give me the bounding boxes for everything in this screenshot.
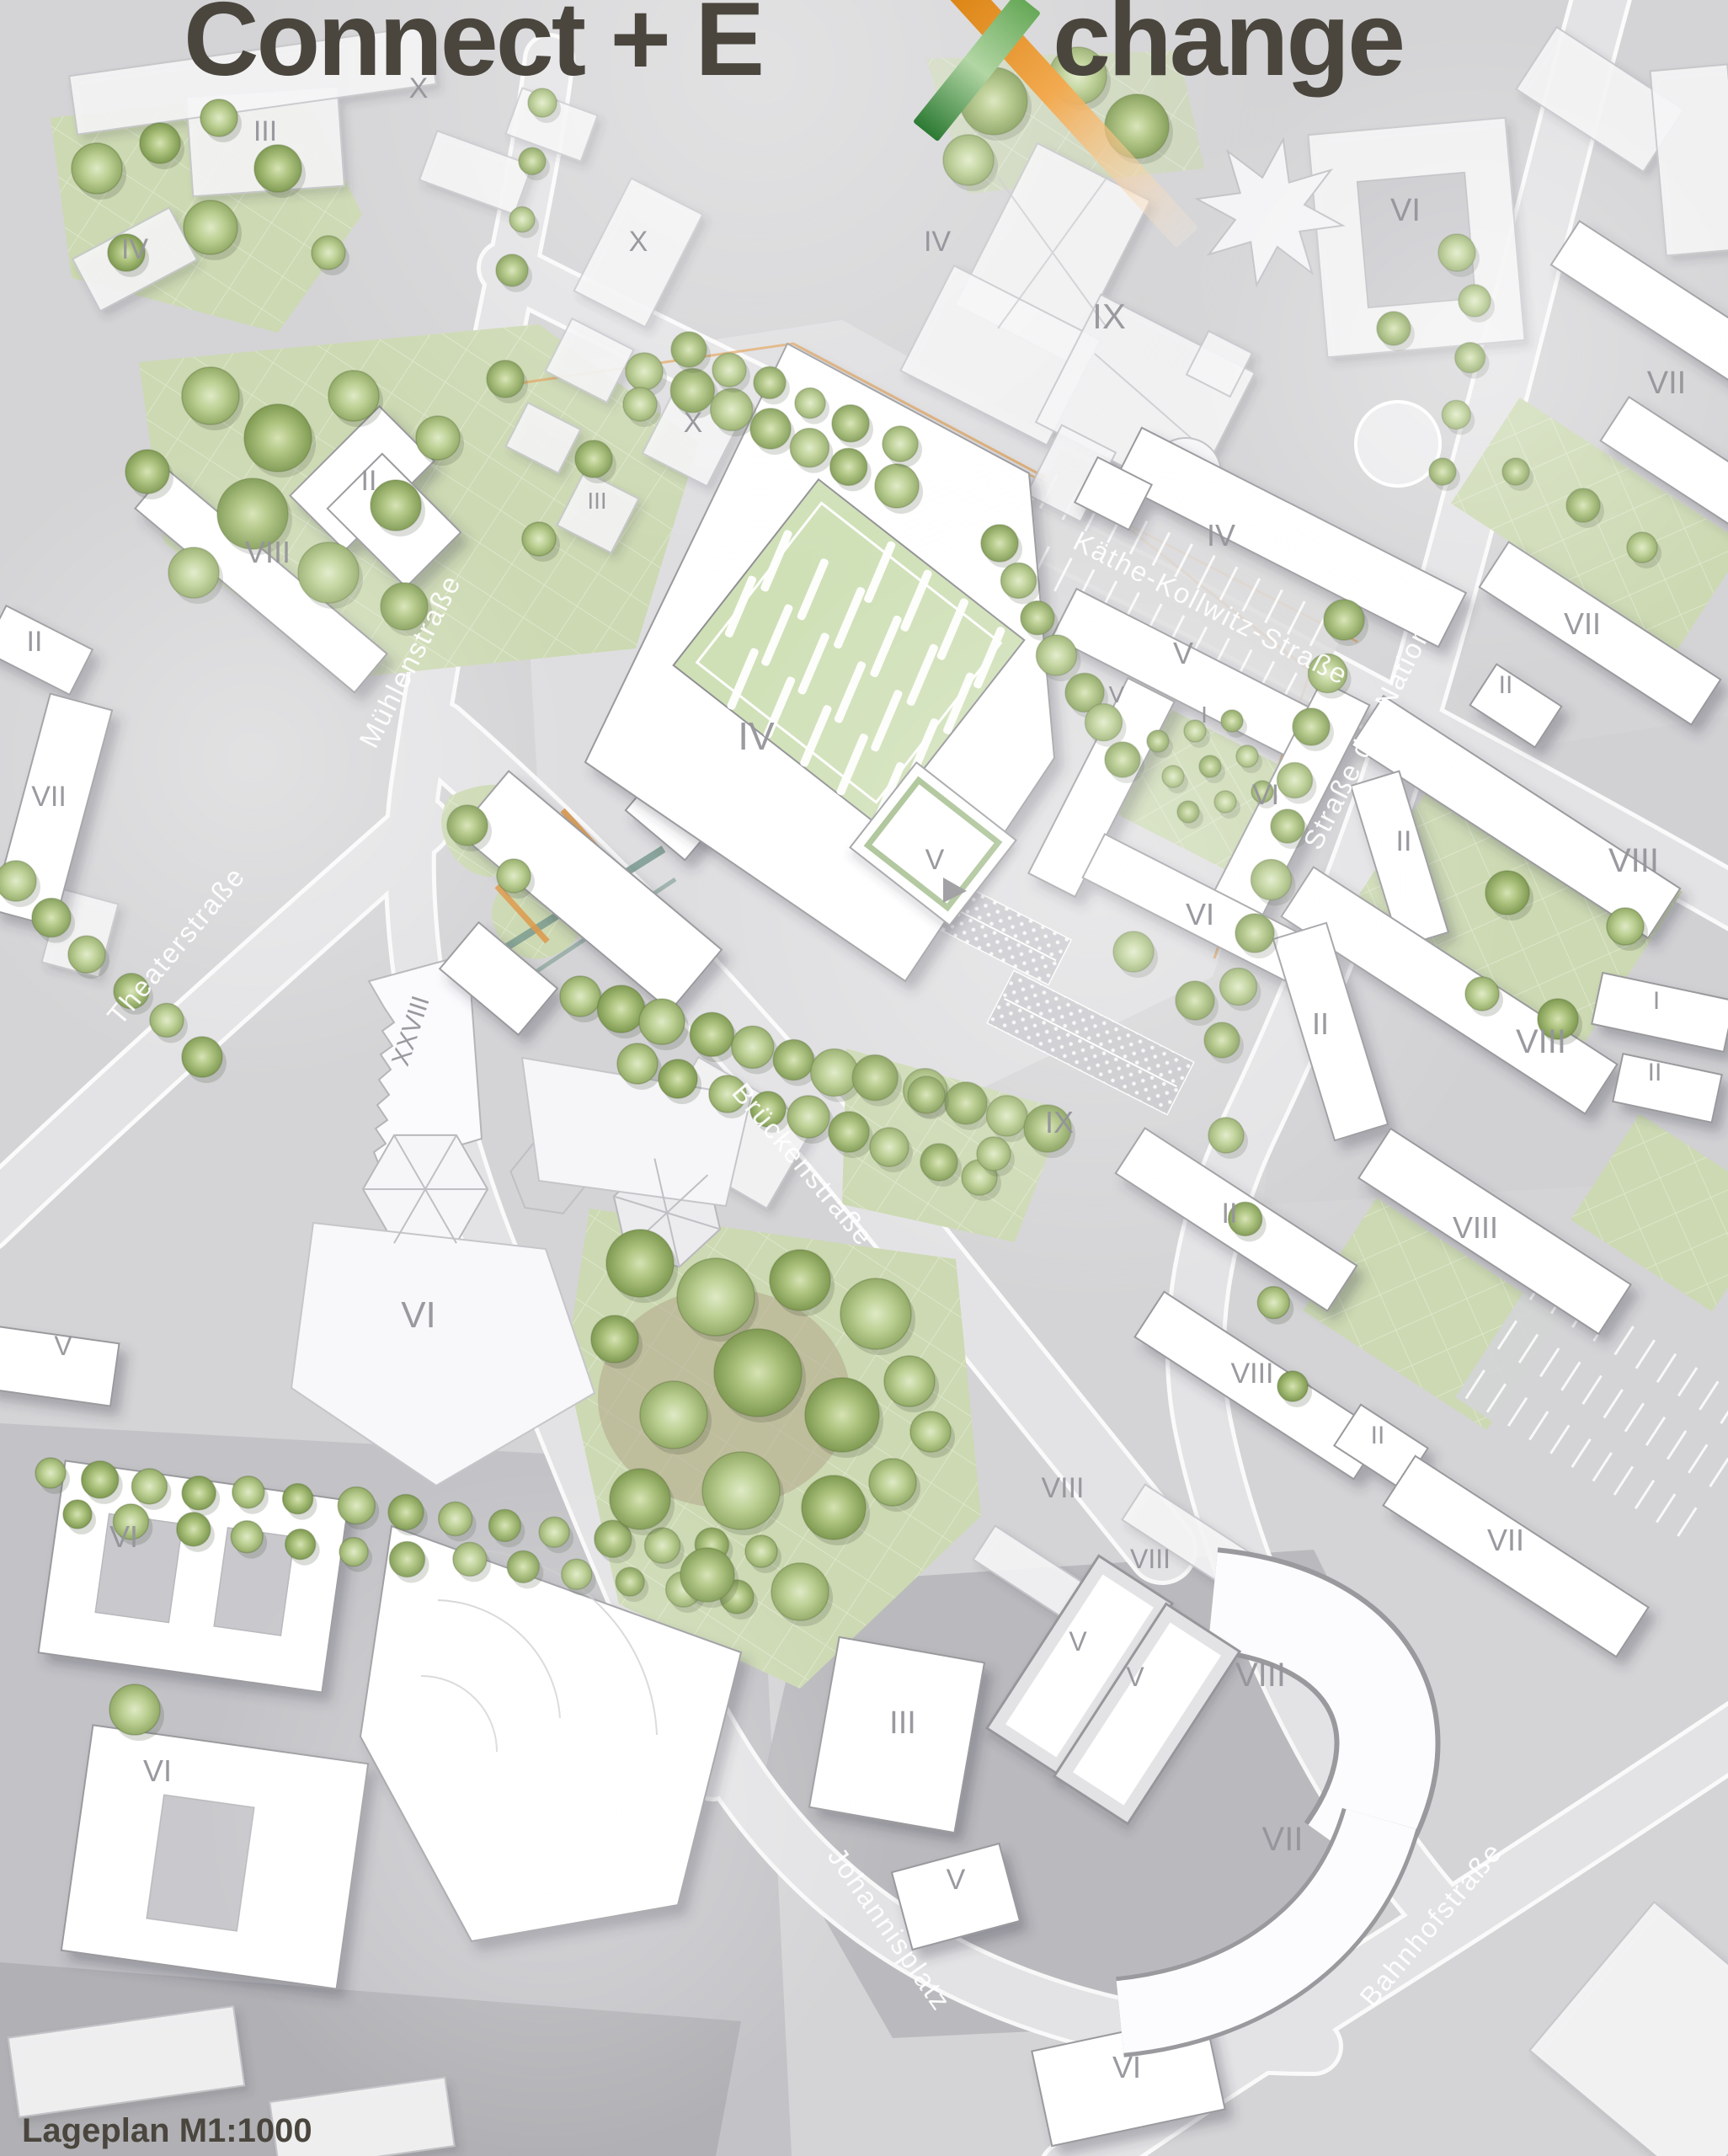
tree-icon: [640, 1381, 707, 1449]
tree-icon: [184, 200, 237, 254]
tree-icon: [606, 1230, 674, 1297]
storey-numeral-label: VII: [1487, 1523, 1524, 1557]
tree-icon: [131, 1469, 167, 1504]
storey-numeral-label: I: [1201, 702, 1208, 728]
storey-numeral-label: V: [1126, 1662, 1144, 1692]
storey-numeral-label: X: [629, 226, 648, 258]
storey-numeral-label: II: [1312, 1006, 1329, 1041]
tree-icon: [200, 99, 237, 136]
tree-icon: [910, 1412, 951, 1452]
site-plan-map: MühlenstraßeTheaterstraßeKäthe-Kollwitz-…: [0, 0, 1728, 2156]
storey-numeral-label: II: [361, 465, 377, 497]
tree-icon: [82, 1461, 119, 1498]
storey-numeral-label: III: [587, 488, 606, 514]
storey-numeral-label: II: [1371, 1422, 1385, 1449]
tree-icon: [617, 1043, 658, 1084]
storey-numeral-label: VIII: [1608, 842, 1659, 879]
storey-numeral-label: VIII: [1130, 1544, 1171, 1574]
tree-icon: [140, 123, 180, 163]
storey-numeral-label: IV: [924, 226, 951, 258]
tree-icon: [677, 1258, 755, 1336]
storey-numeral-label: VI: [1390, 193, 1421, 228]
tree-icon: [802, 1476, 866, 1540]
storey-numeral-label: VII: [1647, 366, 1686, 401]
tree-icon: [659, 1059, 697, 1098]
tree-icon: [1257, 1287, 1289, 1319]
tree-icon: [591, 1315, 638, 1363]
storey-numeral-label: IV: [738, 714, 775, 758]
storey-numeral-label: VI: [401, 1294, 436, 1336]
storey-numeral-label: II: [1222, 1198, 1238, 1230]
storey-numeral-label: II: [1396, 825, 1412, 857]
storey-numeral-label: V: [925, 844, 945, 876]
storey-numeral-label: IV: [1207, 518, 1235, 552]
storey-numeral-label: IX: [1092, 296, 1126, 336]
tree-icon: [597, 985, 644, 1033]
tree-icon: [182, 1476, 216, 1510]
tree-icon: [770, 1250, 830, 1310]
storey-numeral-label: VII: [31, 781, 67, 813]
storey-numeral-label: VI: [1112, 2050, 1141, 2084]
storey-numeral-label: VIII: [1235, 1657, 1286, 1694]
page-title-left: Connect + E: [184, 0, 762, 99]
tree-icon: [805, 1378, 879, 1452]
storey-numeral-label: V: [1109, 681, 1125, 707]
page-title-right: change: [1053, 0, 1403, 99]
storey-numeral-label: VII: [1564, 606, 1601, 641]
storey-numeral-label: VIII: [1516, 1023, 1566, 1060]
storey-numeral-label: V: [947, 1864, 966, 1896]
tree-icon: [869, 1459, 916, 1506]
storey-numeral-label: IX: [1045, 1105, 1074, 1139]
storey-numeral-label: III: [253, 115, 277, 147]
storey-numeral-label: VI: [1252, 779, 1279, 811]
storey-numeral-label: X: [684, 407, 703, 439]
storey-numeral-label: VI: [143, 1753, 172, 1788]
tree-icon: [63, 1500, 92, 1529]
tree-icon: [714, 1329, 802, 1417]
storey-numeral-label: III: [889, 1705, 916, 1741]
storey-numeral-label: II: [1648, 1059, 1662, 1086]
storey-numeral-label: VIII: [1041, 1472, 1084, 1504]
storey-numeral-label: IV: [121, 233, 148, 265]
storey-numeral-label: VI: [109, 1519, 138, 1554]
storey-numeral-label: VIII: [245, 535, 291, 569]
storey-numeral-label: II: [1499, 671, 1513, 699]
tree-icon: [1277, 1371, 1308, 1401]
tree-icon: [177, 1513, 211, 1546]
tree-icon: [72, 143, 122, 194]
tree-icon: [231, 1521, 263, 1553]
storey-numeral-label: VIII: [1453, 1210, 1498, 1245]
tree-icon: [884, 1356, 935, 1406]
storey-numeral-label: VIII: [1230, 1358, 1273, 1390]
tree-icon: [232, 1476, 264, 1508]
storey-numeral-label: VI: [1186, 897, 1214, 931]
tree-icon: [35, 1458, 66, 1488]
storey-numeral-label: VII: [1262, 1821, 1304, 1858]
plan-scale-label: Lageplan M1:1000: [22, 2112, 312, 2150]
tree-icon: [560, 976, 600, 1017]
storey-numeral-label: I: [1653, 987, 1660, 1015]
tree-icon: [840, 1278, 911, 1349]
storey-numeral-label: V: [1069, 1626, 1087, 1657]
storey-numeral-label: V: [1173, 636, 1193, 670]
tree-icon: [1607, 908, 1644, 945]
tree-icon: [109, 1684, 160, 1735]
tree-icon: [182, 367, 239, 424]
storey-numeral-label: V: [54, 1331, 72, 1361]
storey-numeral-label: II: [27, 626, 43, 658]
tree-icon: [283, 1484, 313, 1514]
